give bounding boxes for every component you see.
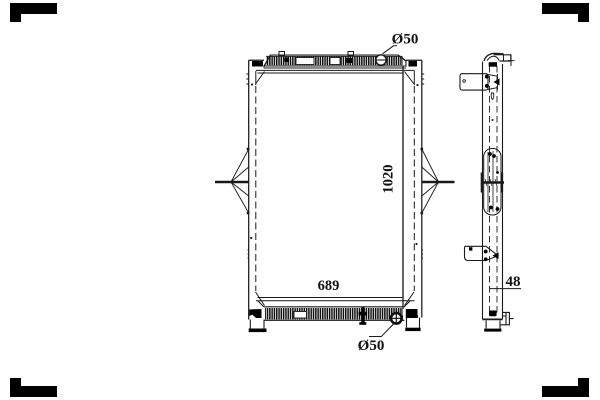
- svg-text:1020: 1020: [381, 165, 397, 194]
- svg-text:48: 48: [506, 274, 521, 290]
- svg-text:Ø50: Ø50: [392, 32, 419, 48]
- svg-text:689: 689: [318, 278, 340, 294]
- svg-text:Ø50: Ø50: [358, 338, 385, 354]
